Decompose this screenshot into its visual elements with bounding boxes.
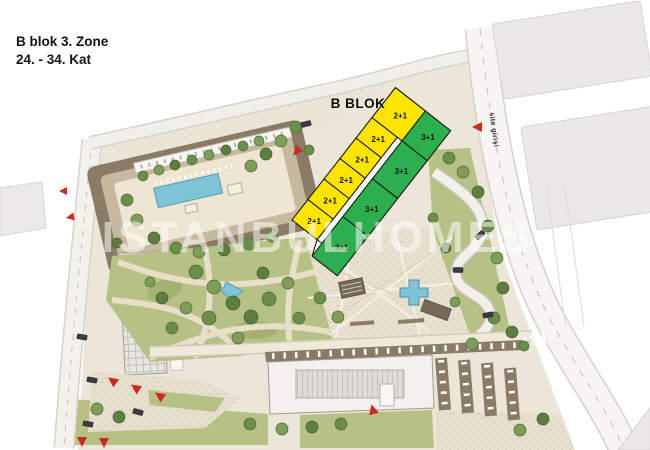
tree-icon [138, 171, 148, 181]
tree-icon [450, 297, 460, 307]
tree-icon [497, 282, 509, 294]
tree-icon [145, 277, 155, 287]
tree-icon [232, 332, 244, 344]
header-line2: 24. - 34. Kat [16, 52, 92, 67]
site-plan-image: 2+1 2+1 2+1 2+1 2+1 2+1 3+1 3+1 3+1 3+1 … [0, 0, 650, 450]
bblok-label: B BLOK [331, 96, 386, 111]
tree-icon [276, 423, 288, 435]
unit-label: 2+1 [339, 176, 353, 185]
tree-icon [290, 121, 302, 133]
tree-icon [254, 136, 264, 146]
tree-icon [187, 155, 197, 165]
car-icon [453, 268, 463, 273]
tree-icon [245, 160, 257, 172]
tree-icon [204, 150, 214, 160]
tree-icon [226, 296, 240, 310]
tree-icon [443, 152, 455, 164]
tree-icon [257, 267, 269, 279]
unit-label: 2+1 [323, 196, 337, 205]
tree-icon [506, 326, 518, 338]
unit-label: 3+1 [421, 133, 435, 142]
tree-icon [457, 166, 469, 178]
tree-icon [244, 418, 256, 430]
tree-icon [170, 160, 180, 170]
bottom-building-core [380, 384, 394, 406]
tree-icon [514, 424, 526, 436]
tree-icon [113, 411, 125, 423]
tree-icon [91, 403, 103, 415]
site-plan-svg: 2+1 2+1 2+1 2+1 2+1 2+1 3+1 3+1 3+1 3+1 … [0, 0, 650, 450]
unit-label: 2+1 [393, 112, 407, 121]
tree-icon [332, 311, 344, 323]
plaza-bottom-right-dots [436, 410, 575, 450]
tree-icon [293, 312, 305, 324]
tree-icon [189, 265, 203, 279]
tree-icon [519, 341, 529, 351]
unit-label: 2+1 [371, 135, 385, 144]
tree-icon [202, 311, 216, 325]
tree-icon [282, 277, 294, 289]
tree-icon [306, 421, 318, 433]
tree-icon [314, 292, 326, 304]
tree-icon [166, 322, 178, 334]
tree-icon [260, 148, 272, 160]
tree-icon [244, 310, 258, 324]
neighbor-block-left [0, 182, 46, 236]
unit-label: 2+1 [355, 155, 369, 164]
neighbor-block-mid [521, 106, 650, 230]
lawn-bottom-center [300, 410, 434, 448]
unit-label: 3+1 [395, 167, 409, 176]
header-line1: B blok 3. Zone [16, 34, 109, 49]
entrance-arrow-icon [65, 213, 74, 222]
neighbor-block-top [492, 1, 650, 100]
tree-icon [472, 186, 484, 198]
tree-icon [335, 418, 347, 430]
tree-icon [121, 194, 133, 206]
watermark: ISTANBULHOMES [102, 213, 535, 262]
tree-icon [180, 302, 192, 314]
tree-icon [537, 413, 549, 425]
tree-icon [304, 145, 314, 155]
entrance-arrow-icon [59, 187, 67, 195]
tree-icon [466, 338, 478, 350]
tree-icon [238, 141, 248, 151]
tree-icon [221, 145, 231, 155]
tree-icon [154, 165, 164, 175]
tree-icon [156, 292, 168, 304]
tree-icon [207, 280, 221, 294]
tree-icon [275, 135, 287, 147]
tree-icon [262, 292, 276, 306]
